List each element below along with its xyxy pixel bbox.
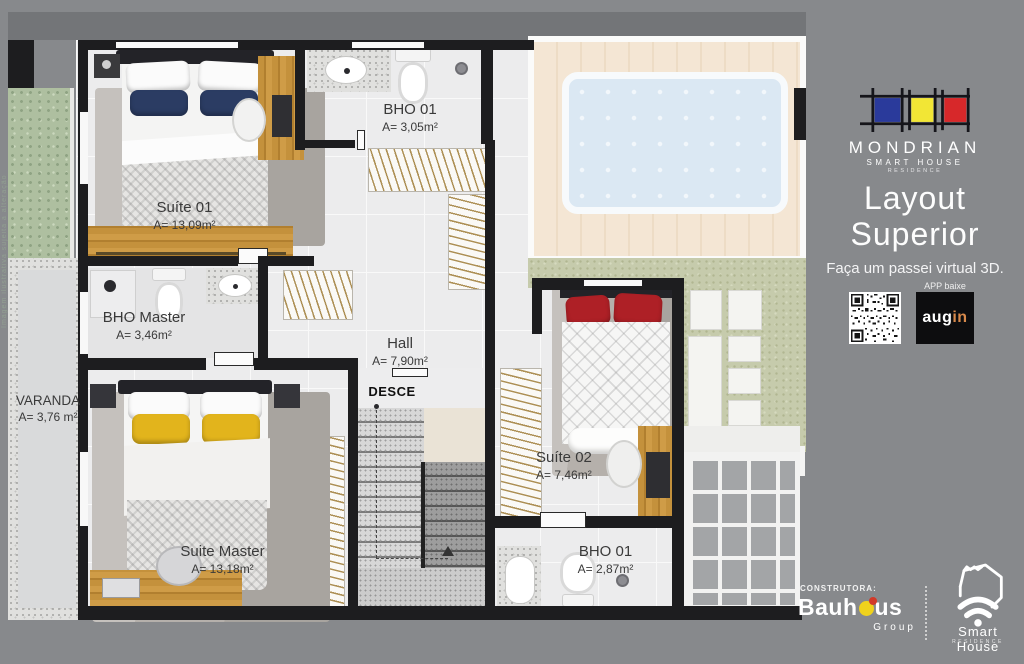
paver-tile <box>728 400 761 426</box>
room-name: Suíte 02 <box>536 448 636 468</box>
room-name: Suite Master <box>145 542 300 562</box>
room-label-suite-master: Suite Master A= 13,18m² <box>145 542 300 577</box>
bauhaus-text-post: us <box>875 594 903 620</box>
room-label-hall: Hall A= 7,90m² <box>350 334 450 369</box>
augin-app-badge: augin <box>916 292 974 344</box>
bho01-top-toilet <box>398 62 428 104</box>
app-download-label: APP baixe <box>916 281 974 291</box>
stairs-flight-lower <box>424 462 486 568</box>
suite-02-laptop <box>646 452 670 498</box>
wall-deck-edge <box>794 88 806 140</box>
qr-code-pattern <box>849 292 901 344</box>
layout-title-line1: Layout <box>806 180 1024 217</box>
suite-master-nightstand <box>90 384 116 408</box>
wall-bho01-south <box>303 140 355 148</box>
window <box>352 42 424 48</box>
room-name: Suíte 01 <box>112 198 257 218</box>
augin-text-orange: in <box>952 309 967 327</box>
room-name: VARANDA <box>4 392 92 410</box>
layout-title-line2: Superior <box>806 216 1024 253</box>
stairs-divider <box>421 462 425 568</box>
room-area: A= 3,76 m² <box>4 410 92 426</box>
closet-rail <box>448 194 488 290</box>
room-name: BHO 01 <box>548 542 663 562</box>
suite-01-lamp <box>102 60 111 69</box>
watermark-text: Imagem ilustrativa sujeita a alteração <box>1 118 8 328</box>
brand-name: MONDRIAN <box>806 138 1024 158</box>
stairs-path-line <box>376 558 448 560</box>
window <box>80 452 88 526</box>
bauhaus-a-dot <box>859 601 874 616</box>
wall-bho01-east <box>481 40 493 144</box>
room-area: A= 2,87m² <box>548 562 663 578</box>
paver-tile <box>728 290 762 330</box>
room-label-bho01-top: BHO 01 A= 3,05m² <box>350 100 470 135</box>
pergola-grid <box>684 452 800 610</box>
bho01-top-shower-drain <box>455 62 468 75</box>
room-name: BHO Master <box>74 308 214 328</box>
room-area: A= 3,46m² <box>74 328 214 344</box>
wall-suite01-south <box>268 256 314 266</box>
smart-house-logo <box>936 558 1020 620</box>
room-label-varanda: VARANDA A= 3,76 m² <box>4 392 92 425</box>
smart-house-sub: RESIDENCE <box>936 639 1020 645</box>
pool <box>562 72 788 214</box>
virtual-tour-cta: Faça um passei virtual 3D. <box>806 260 1024 277</box>
bho-master-toilet-tank <box>152 268 186 281</box>
paver-tile <box>728 336 761 362</box>
pergola-slab <box>684 426 800 454</box>
bho01-top-toilet-tank <box>395 48 431 62</box>
wall-suite02-west-stub <box>532 278 542 334</box>
paver-tile <box>728 368 761 394</box>
qr-code <box>849 292 901 344</box>
suite-01-pillow-white <box>125 60 190 93</box>
bauhaus-text-pre: Bauh <box>798 594 858 620</box>
wall-suite-master-north <box>78 358 206 370</box>
suite-01-pillow-white <box>197 60 262 93</box>
wall-suite-master-north <box>254 358 358 370</box>
room-area: A= 7,90m² <box>350 354 450 370</box>
augin-text-white: aug <box>922 309 952 327</box>
wall-corridor-east <box>485 140 495 616</box>
suite-master-pillow-yellow <box>132 414 190 444</box>
bho-master-drain <box>233 284 238 289</box>
suite-01-pillow-navy <box>130 90 188 116</box>
door-leaf <box>540 512 586 528</box>
closet-rail <box>368 148 486 192</box>
suite-master-laptop <box>102 578 140 598</box>
wall-bottom-right <box>672 606 802 620</box>
wall-bho-master-east <box>258 256 268 368</box>
bauhaus-logo: Bauhus <box>798 594 916 621</box>
stairs-path-start <box>374 404 379 409</box>
window <box>116 42 238 48</box>
window <box>80 112 88 184</box>
poster-canvas: Suíte 01 A= 13,09m² BHO 01 A= 3,05m² BHO… <box>0 0 1024 664</box>
door-leaf <box>392 368 428 377</box>
wall-east <box>672 278 684 620</box>
bauhaus-group-label: Group <box>798 622 916 633</box>
room-label-bho-master: BHO Master A= 3,46m² <box>74 308 214 343</box>
varanda-floor <box>18 270 76 608</box>
brand-tagline: SMART HOUSE <box>806 158 1024 167</box>
bho01-bottom-sink <box>505 556 535 604</box>
wall-top-left-block <box>8 40 34 88</box>
room-name: Hall <box>350 334 450 354</box>
room-name: BHO 01 <box>350 100 470 120</box>
mondrian-logo-icon <box>860 86 970 134</box>
room-label-suite-02: Suíte 02 A= 7,46m² <box>536 448 636 483</box>
garden-strip <box>8 88 74 258</box>
closet-rail <box>283 270 353 320</box>
room-area: A= 3,05m² <box>350 120 470 136</box>
footer-divider <box>925 586 927 640</box>
constructor-label: CONSTRUTORA: <box>800 584 910 593</box>
wall-suite01-south <box>78 256 238 266</box>
brand-subtag: RESIDENCE <box>806 168 1024 174</box>
room-label-suite-01: Suíte 01 A= 13,09m² <box>112 198 257 233</box>
stairs-label-desce: DESCE <box>352 384 432 399</box>
stairs-up-arrow <box>442 546 454 556</box>
room-area: A= 13,09m² <box>112 218 257 234</box>
stairs-landing-top <box>424 408 486 462</box>
suite-01-chair <box>232 98 266 142</box>
wall-bottom <box>78 606 678 620</box>
stairs-path-line <box>376 410 378 558</box>
wall-suite01-bho <box>295 40 305 150</box>
smart-house-icon <box>936 558 1020 628</box>
bho01-top-drain <box>344 68 350 74</box>
room-area: A= 7,46m² <box>536 468 636 484</box>
paver-tile <box>690 290 722 330</box>
bho-master-shower-head <box>104 280 116 292</box>
mondrian-logo <box>860 86 970 134</box>
suite-01-monitor <box>272 95 292 137</box>
room-area: A= 13,18m² <box>145 562 300 578</box>
suite-master-nightstand <box>274 384 300 408</box>
window <box>584 280 642 286</box>
door-leaf <box>214 352 254 366</box>
room-label-bho01-bottom: BHO 01 A= 2,87m² <box>548 542 663 577</box>
